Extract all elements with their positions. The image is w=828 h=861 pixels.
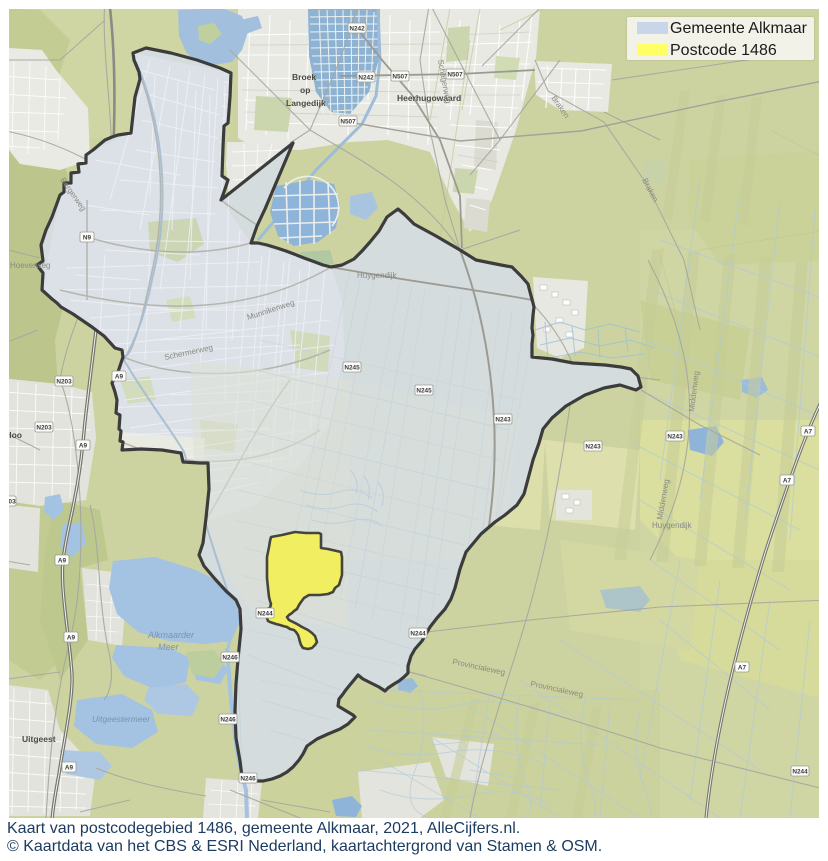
svg-text:N242: N242	[349, 26, 365, 33]
svg-text:N244: N244	[410, 631, 426, 638]
svg-text:N244: N244	[792, 769, 808, 776]
svg-text:Uitgeest: Uitgeest	[22, 734, 56, 744]
svg-text:A9: A9	[115, 374, 124, 381]
svg-text:op: op	[300, 85, 310, 95]
svg-text:Broek: Broek	[292, 72, 316, 82]
svg-text:Hoeverweg: Hoeverweg	[10, 261, 50, 270]
svg-text:A9: A9	[79, 443, 88, 450]
svg-text:N243: N243	[585, 444, 601, 451]
svg-text:N507: N507	[447, 72, 463, 79]
svg-text:N203: N203	[56, 379, 72, 386]
svg-text:N9: N9	[83, 235, 92, 242]
svg-text:A9: A9	[58, 558, 67, 565]
svg-text:Meer: Meer	[158, 642, 180, 652]
svg-text:N243: N243	[667, 434, 683, 441]
svg-text:A9: A9	[65, 765, 74, 772]
svg-text:A7: A7	[783, 478, 792, 485]
svg-text:N246: N246	[240, 776, 256, 783]
svg-text:N245: N245	[344, 365, 360, 372]
svg-text:A7: A7	[804, 429, 813, 436]
svg-text:Langedijk: Langedijk	[286, 98, 326, 108]
svg-text:N246: N246	[222, 655, 238, 662]
svg-text:N242: N242	[358, 75, 374, 82]
svg-text:N203: N203	[36, 425, 52, 432]
svg-text:N507: N507	[392, 74, 408, 81]
svg-text:N507: N507	[340, 119, 356, 126]
svg-text:N244: N244	[257, 611, 273, 618]
svg-text:Alkmaarder: Alkmaarder	[147, 630, 195, 640]
svg-text:N243: N243	[495, 417, 511, 424]
svg-text:Uitgeestermeer: Uitgeestermeer	[92, 714, 151, 724]
svg-text:A7: A7	[738, 665, 747, 672]
svg-text:Huygendijk: Huygendijk	[357, 271, 398, 280]
svg-text:Huygendijk: Huygendijk	[652, 521, 693, 530]
svg-text:A9: A9	[67, 635, 76, 642]
svg-text:N246: N246	[220, 717, 236, 724]
svg-text:N245: N245	[416, 388, 432, 395]
